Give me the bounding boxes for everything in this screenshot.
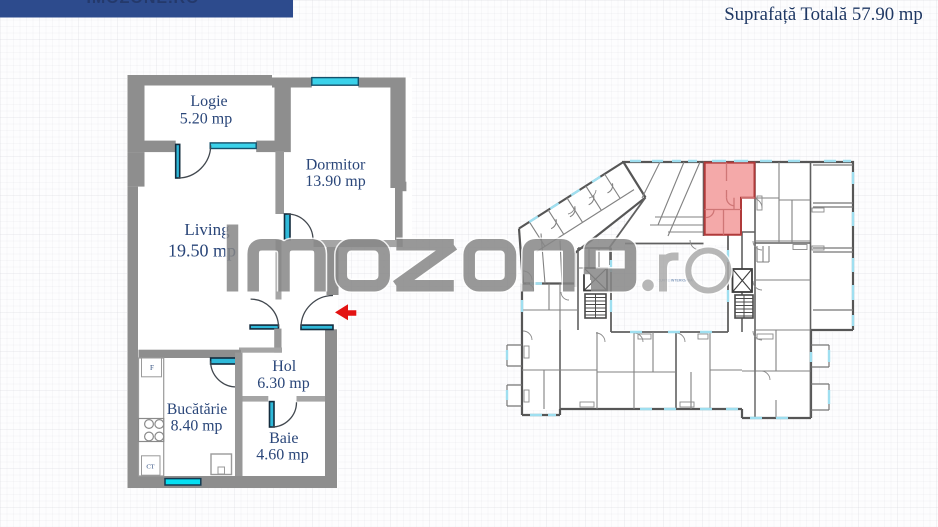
- svg-text:Living: Living: [184, 220, 230, 239]
- svg-text:F: F: [150, 364, 154, 372]
- svg-text:CT: CT: [146, 464, 154, 471]
- svg-text:8.40 mp: 8.40 mp: [171, 418, 223, 435]
- svg-text:6.30 mp: 6.30 mp: [257, 375, 309, 392]
- svg-text:Bucătărie: Bucătărie: [167, 401, 228, 418]
- svg-text:Hol: Hol: [272, 358, 297, 375]
- svg-text:5.20 mp: 5.20 mp: [180, 111, 232, 128]
- svg-text:Logie: Logie: [190, 93, 227, 110]
- svg-text:13.90 mp: 13.90 mp: [305, 173, 365, 190]
- svg-text:Dormitor: Dormitor: [306, 157, 366, 174]
- svg-text:Suprafață Totală 57.90 mp: Suprafață Totală 57.90 mp: [724, 4, 923, 25]
- svg-text:Baie: Baie: [269, 430, 298, 447]
- svg-text:IMOZONE.RO: IMOZONE.RO: [86, 0, 199, 7]
- svg-text:4.60 mp: 4.60 mp: [256, 447, 308, 464]
